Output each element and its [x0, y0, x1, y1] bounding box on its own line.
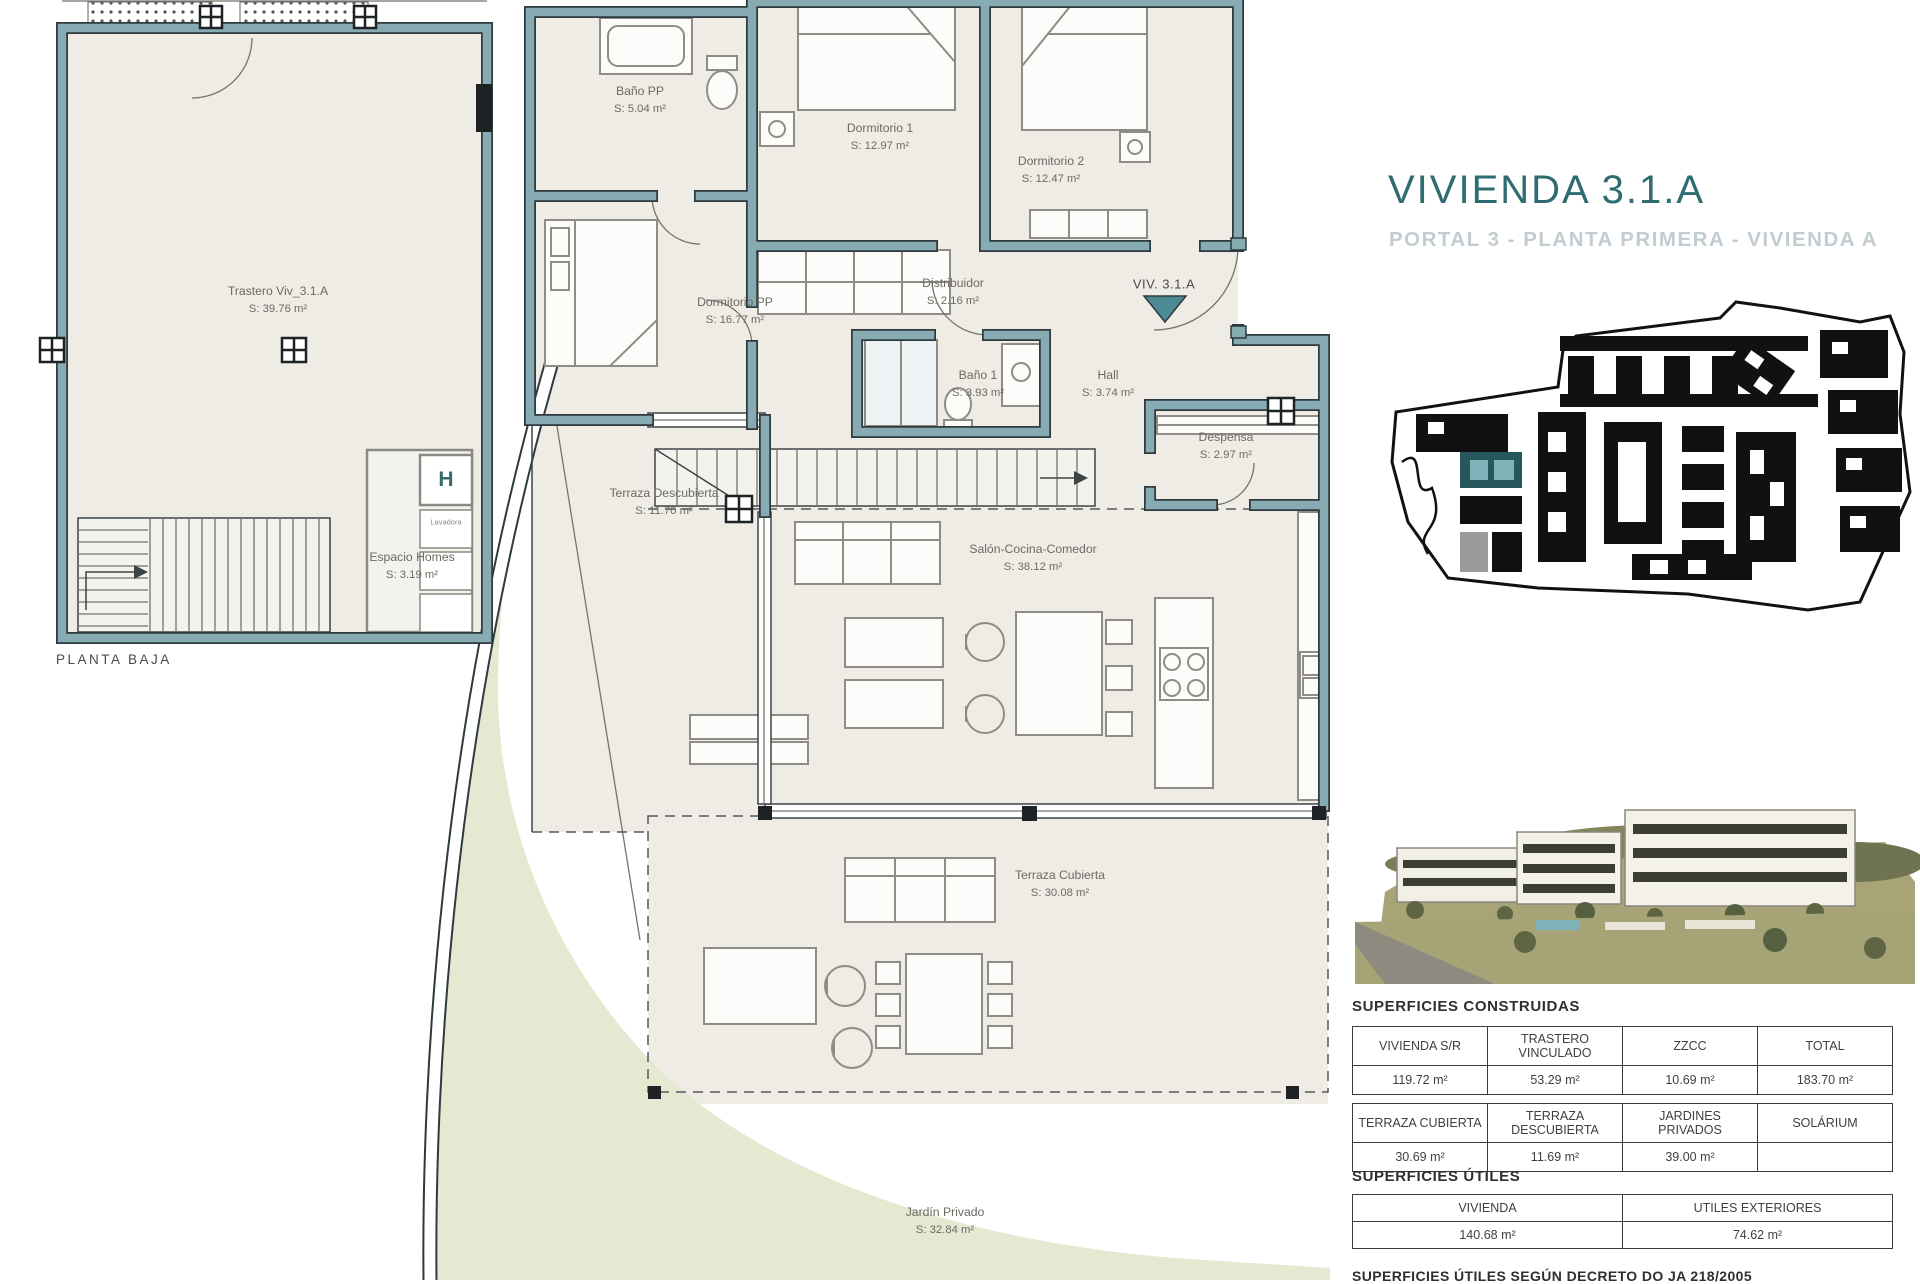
outdoor-sofa: [845, 858, 995, 922]
cell-value: 53.29 m²: [1488, 1066, 1623, 1095]
column: [1286, 1086, 1299, 1099]
window-marker: [200, 6, 222, 28]
room-label-trastero: Trastero Viv_3.1.A S: 39.76 m²: [228, 282, 328, 318]
room-label-dormitorio1: Dormitorio 1 S: 12.97 m²: [847, 119, 913, 155]
planter: [690, 715, 808, 764]
window-marker: [1268, 398, 1294, 424]
col-header: TERRAZA DESCUBIERTA: [1488, 1104, 1623, 1143]
room-label-distribuidor: Distribuidor S: 2.16 m²: [922, 274, 984, 310]
shelf-3: [420, 594, 472, 632]
entrance-jamb-bottom: [1231, 326, 1246, 338]
window-marker: [282, 338, 306, 362]
superficies-construidas-table-1: VIVIENDA S/R TRASTERO VINCULADO ZZCC TOT…: [1352, 1026, 1893, 1095]
col-header: JARDINES PRIVADOS: [1623, 1104, 1758, 1143]
window-marker: [354, 6, 376, 28]
decree-footnote: SUPERFICIES ÚTILES SEGÚN DECRETO DO JA 2…: [1352, 1268, 1752, 1284]
room-label-bano-pp: Baño PP S: 5.04 m²: [614, 82, 666, 118]
col-header: TOTAL: [1758, 1027, 1893, 1066]
coffee-table-1: [845, 618, 943, 667]
room-label-dormitorio2: Dormitorio 2 S: 12.47 m²: [1018, 152, 1084, 188]
dining-table: [1016, 612, 1132, 736]
superficies-utiles-heading: SUPERFICIES ÚTILES: [1352, 1168, 1893, 1185]
page-title: VIVIENDA 3.1.A: [1388, 168, 1705, 213]
cell-value: 119.72 m²: [1353, 1066, 1488, 1095]
room-label-espacio-homes: Espacio Homes S: 3.19 m²: [369, 548, 454, 584]
outdoor-daybed: [704, 948, 816, 1024]
salon-sofa: [795, 522, 940, 584]
superficies-construidas-heading: SUPERFICIES CONSTRUIDAS: [1352, 998, 1893, 1015]
column: [648, 1086, 661, 1099]
col-header: TERRAZA CUBIERTA: [1353, 1104, 1488, 1143]
dormitorio-pp-bed: [545, 220, 657, 366]
room-label-salon: Salón-Cocina-Comedor S: 38.12 m²: [969, 540, 1096, 576]
cell-value: 74.62 m²: [1623, 1222, 1893, 1249]
lavadora-shelf: [420, 510, 472, 548]
cell-value: 10.69 m²: [1623, 1066, 1758, 1095]
superficies-utiles-table: VIVIENDA UTILES EXTERIORES 140.68 m² 74.…: [1352, 1194, 1893, 1249]
window-marker: [40, 338, 64, 362]
main-stairs: [655, 449, 1095, 506]
site-key-plan: [1392, 302, 1910, 610]
room-label-hall: Hall S: 3.74 m²: [1082, 366, 1134, 402]
room-label-terraza-descubierta: Terraza Descubierta S: 11.70 m²: [609, 484, 718, 520]
room-label-bano1: Baño 1 S: 3.93 m²: [952, 366, 1004, 402]
entrance-jamb-top: [1231, 238, 1246, 250]
col-header: VIVIENDA: [1353, 1195, 1623, 1222]
lavadora-label: Lavadora: [430, 518, 461, 527]
superficies-construidas-table-2: TERRAZA CUBIERTA TERRAZA DESCUBIERTA JAR…: [1352, 1103, 1893, 1172]
outdoor-dining-table: [876, 954, 1012, 1054]
room-label-terraza-cubierta: Terraza Cubierta S: 30.08 m²: [1015, 866, 1105, 902]
column: [758, 806, 772, 820]
column: [1312, 806, 1326, 820]
col-header: VIVIENDA S/R: [1353, 1027, 1488, 1066]
room-label-jardin: Jardín Privado S: 32.84 m²: [906, 1203, 985, 1239]
col-header: UTILES EXTERIORES: [1623, 1195, 1893, 1222]
cell-value: 183.70 m²: [1758, 1066, 1893, 1095]
room-label-dormitorio-pp: Dormitorio PP S: 16.77 m²: [697, 293, 773, 329]
coffee-table-2: [845, 680, 943, 728]
building-render-illustration: [1355, 810, 1920, 984]
window-marker: [726, 496, 752, 522]
cell-value: 140.68 m²: [1353, 1222, 1623, 1249]
room-label-despensa: Despensa S: 2.97 m²: [1199, 428, 1254, 464]
page-subtitle: PORTAL 3 - PLANTA PRIMERA - VIVIENDA A: [1389, 228, 1878, 252]
kitchen-island: [1155, 598, 1213, 788]
column: [1022, 806, 1037, 821]
planta-baja-stairs: [78, 518, 330, 632]
col-header: TRASTERO VINCULADO: [1488, 1027, 1623, 1066]
dormitorio2-closet: [1030, 210, 1147, 238]
entrance-label: VIV. 3.1.A: [1133, 277, 1195, 292]
floorplan-sheet: { "header": { "title": "VIVIENDA 3.1.A",…: [0, 0, 1920, 1280]
homes-h-label: H: [438, 468, 453, 492]
planta-baja-caption: PLANTA BAJA: [56, 652, 172, 667]
col-header: SOLÁRIUM: [1758, 1104, 1893, 1143]
col-header: ZZCC: [1623, 1027, 1758, 1066]
door-mark: [476, 84, 492, 132]
